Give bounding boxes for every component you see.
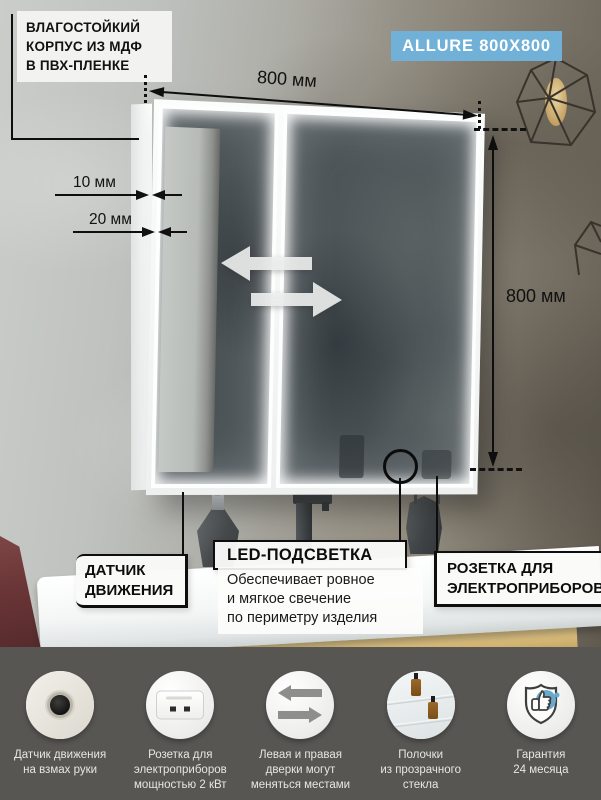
feature-caption: Левая и правая дверки могут меняться мес… (251, 748, 350, 794)
callout-bracket-vertical (11, 14, 13, 140)
led-connector-line (399, 478, 401, 541)
feature-warranty: Гарантия 24 месяца (481, 647, 601, 800)
motion-sensor-icon (26, 671, 94, 739)
model-badge: ALLURE 800X800 (391, 31, 562, 61)
swap-arrow-right-icon (251, 282, 342, 318)
callout-socket: РОЗЕТКА ДЛЯ ЭЛЕКТРОПРИБОРОВ (434, 551, 601, 607)
glass-shelves-icon (387, 671, 455, 739)
width-dimension-label: 800 мм (256, 67, 317, 92)
feature-motion-sensor: Датчик движения на взмах руки (0, 647, 120, 800)
callout-line: ЭЛЕКТРОПРИБОРОВ (447, 579, 601, 599)
feature-caption: Полочки из прозрачного стекла (380, 748, 461, 794)
sensor-connector-line (182, 492, 184, 556)
callout-line: по периметру изделия (227, 609, 423, 628)
doorway-reflection (158, 127, 220, 472)
callout-line: РОЗЕТКА ДЛЯ (447, 559, 601, 579)
swap-doors-icon (266, 671, 334, 739)
feature-caption: Датчик движения на взмах руки (14, 748, 106, 778)
feature-socket: Розетка для электроприборов мощностью 2 … (120, 647, 240, 800)
faucet-spout (322, 502, 329, 511)
dimension-tick (478, 101, 481, 129)
dimension-tick (470, 468, 522, 471)
pendant-lamp (479, 40, 601, 275)
mirror-reflection-object (339, 435, 364, 478)
gap-top-label: 10 мм (73, 174, 116, 192)
warranty-shield-icon (507, 671, 575, 739)
callout-line: В ПВХ-ПЛЕНКЕ (26, 56, 168, 75)
socket-connector-line (436, 476, 438, 552)
product-promo-image: ВЛАГОСТОЙКИЙ КОРПУС ИЗ МДФ В ПВХ-ПЛЕНКЕ … (0, 0, 601, 800)
dimension-tick (474, 128, 526, 131)
feature-caption: Розетка для электроприборов мощностью 2 … (134, 748, 227, 794)
callout-line: ДАТЧИК (85, 561, 185, 581)
callout-line: Обеспечивает ровное (227, 571, 423, 590)
callout-line: и мягкое свечение (227, 590, 423, 609)
callout-led-description: Обеспечивает ровное и мягкое свечение по… (218, 568, 423, 634)
callout-line: ВЛАГОСТОЙКИЙ (26, 18, 168, 37)
callout-line: КОРПУС ИЗ МДФ (26, 37, 168, 56)
feature-swap-doors: Левая и правая дверки могут меняться мес… (240, 647, 360, 800)
dispenser-cap (212, 495, 224, 510)
height-dimension-label: 800 мм (506, 286, 566, 307)
features-bar: Датчик движения на взмах руки Розетка дл… (0, 647, 601, 800)
callout-led-title: LED-ПОДСВЕТКА (213, 540, 407, 570)
dimension-tick (144, 75, 147, 103)
feature-caption: Гарантия 24 месяца (513, 748, 568, 778)
gap-bottom-label: 20 мм (89, 211, 132, 229)
callout-bracket-horizontal (11, 138, 139, 140)
callout-line: ДВИЖЕНИЯ (85, 581, 185, 601)
feature-glass-shelves: Полочки из прозрачного стекла (361, 647, 481, 800)
swap-arrow-left-icon (221, 246, 312, 281)
callout-body-material: ВЛАГОСТОЙКИЙ КОРПУС ИЗ МДФ В ПВХ-ПЛЕНКЕ (17, 11, 172, 82)
mirror-reflection-object (421, 450, 451, 479)
power-socket-icon (146, 671, 214, 739)
callout-motion-sensor: ДАТЧИК ДВИЖЕНИЯ (76, 554, 188, 608)
